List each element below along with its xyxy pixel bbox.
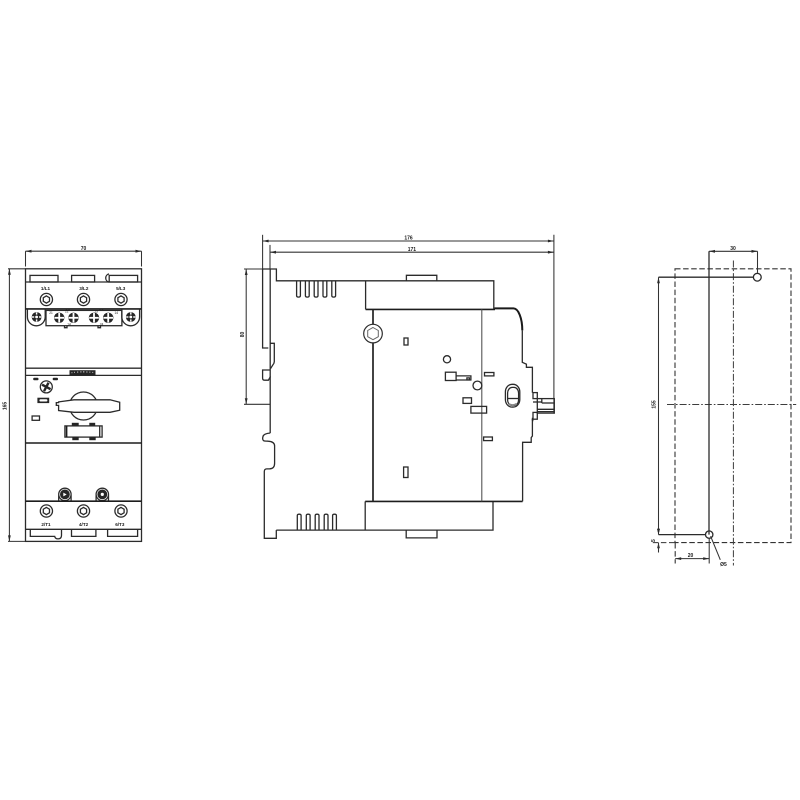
svg-text:3/L2: 3/L2 <box>79 286 89 291</box>
svg-text:22: 22 <box>65 309 69 313</box>
svg-text:70: 70 <box>81 246 87 252</box>
svg-text:80: 80 <box>240 332 246 338</box>
svg-text:24: 24 <box>100 323 104 327</box>
svg-text:176: 176 <box>404 236 413 242</box>
svg-text:5: 5 <box>651 539 657 542</box>
svg-text:1/L1: 1/L1 <box>41 286 51 291</box>
svg-text:6/T3: 6/T3 <box>115 522 125 527</box>
svg-text:165: 165 <box>3 402 9 411</box>
svg-text:155: 155 <box>652 400 658 409</box>
svg-text:14: 14 <box>67 323 71 327</box>
svg-text:21: 21 <box>49 311 53 315</box>
svg-text:171: 171 <box>408 247 417 253</box>
svg-text:13: 13 <box>94 309 98 313</box>
svg-text:5/L3: 5/L3 <box>116 286 126 291</box>
svg-text:30: 30 <box>730 246 736 252</box>
svg-text:2/T1: 2/T1 <box>41 522 51 527</box>
svg-text:Ø5: Ø5 <box>720 562 727 568</box>
svg-text:4/T2: 4/T2 <box>79 522 89 527</box>
svg-text:20: 20 <box>688 553 694 559</box>
svg-text:14: 14 <box>115 311 119 315</box>
